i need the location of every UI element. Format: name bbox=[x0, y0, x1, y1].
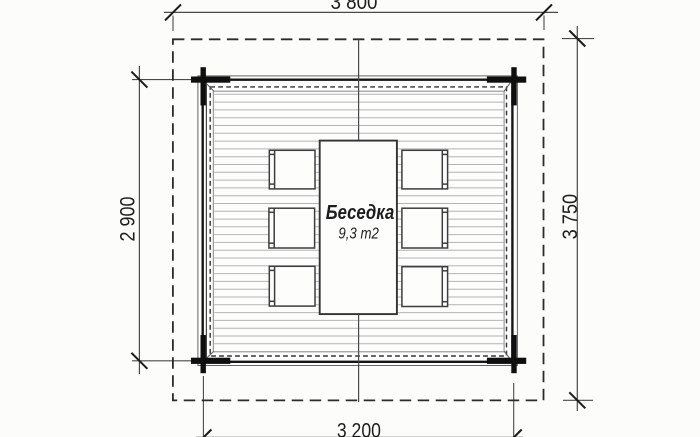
svg-text:Беседка: Беседка bbox=[326, 202, 395, 224]
svg-text:3 800: 3 800 bbox=[331, 0, 378, 14]
svg-text:9,3 m2: 9,3 m2 bbox=[338, 225, 379, 242]
svg-text:3 200: 3 200 bbox=[337, 418, 381, 437]
svg-text:3 750: 3 750 bbox=[558, 194, 582, 240]
svg-text:2 900: 2 900 bbox=[116, 196, 140, 241]
